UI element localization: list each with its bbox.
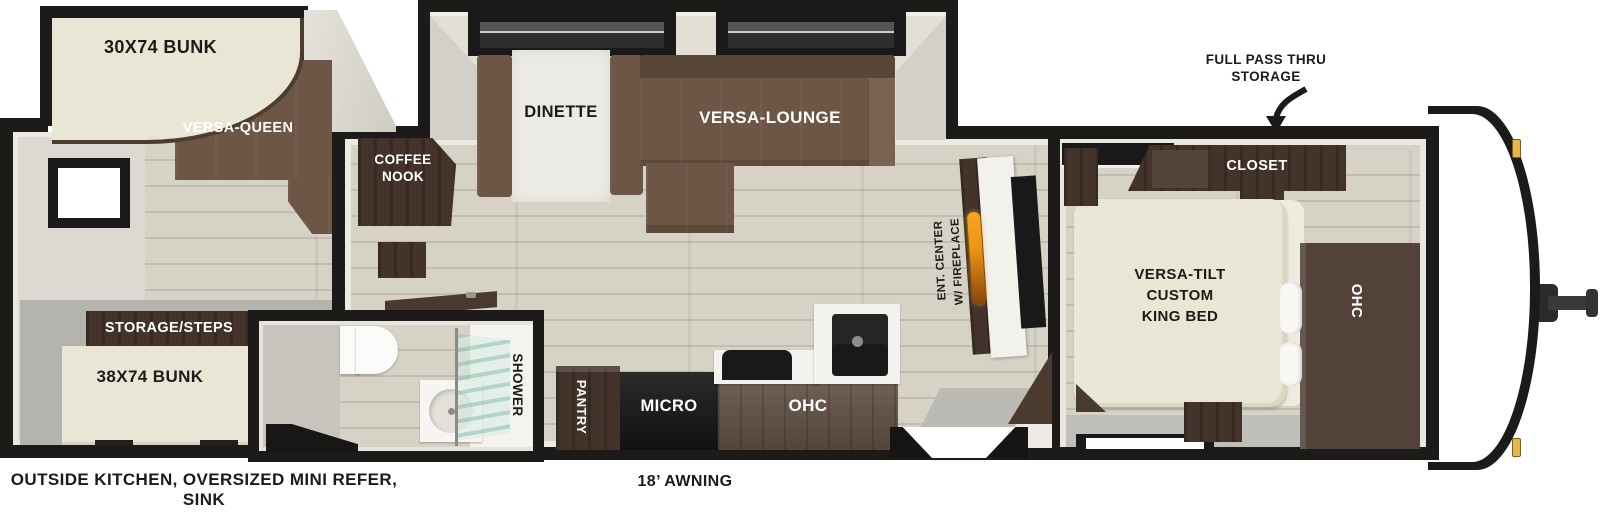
bunk-foot-mark-right [200, 440, 238, 445]
bed-label: VERSA-TILT CUSTOM KING BED [1110, 262, 1250, 328]
pass-thru-line2: STORAGE [1231, 68, 1300, 85]
bedroom-ohc-label: OHC [1348, 256, 1366, 346]
pass-thru-line1: FULL PASS THRU [1206, 51, 1327, 68]
storage-arrow-icon [1248, 86, 1320, 134]
top-slide-top-wall [418, 0, 958, 12]
counter-faucet-dot [466, 292, 476, 298]
slide-window-left-glass [480, 22, 664, 48]
bunk-foot-mark-left [95, 440, 133, 445]
top-slide-left-wall [418, 0, 430, 140]
bedroom-foot-cabinet [1064, 148, 1098, 206]
shower-glass-rod [455, 328, 458, 446]
outside-kitchen-caption: OUTSIDE KITCHEN, OVERSIZED MINI REFER, S… [8, 468, 400, 512]
cooktop [722, 350, 792, 380]
dinette-label: DINETTE [508, 100, 614, 124]
bed-label-line1: VERSA-TILT [1134, 264, 1225, 285]
dinette-bench-right [610, 55, 643, 195]
awning-caption: 18’ AWNING [595, 471, 775, 493]
rear-window-glass [58, 168, 120, 218]
bunk-slide-top-wall [40, 6, 308, 18]
slide-window-right-glass [728, 22, 894, 48]
hitch-tip [1586, 289, 1598, 317]
bedroom-nightstand [1184, 402, 1242, 442]
storage-steps-label: STORAGE/STEPS [88, 314, 250, 342]
rear-room-left-wall [0, 118, 13, 458]
outside-kitchen-line1: OUTSIDE KITCHEN, OVERSIZED MINI REFER, [11, 470, 397, 490]
bath-sink-drain [448, 408, 455, 415]
dinette-bench-left [477, 55, 512, 197]
lounge-chaise [646, 163, 734, 233]
rv-floorplan: 30X74 BUNK VERSA-QUEEN STORAGE/STEPS 38X… [0, 0, 1600, 517]
dinette-table [512, 50, 610, 202]
pass-thru-callout: FULL PASS THRU STORAGE [1180, 50, 1352, 86]
pantry-label: PANTRY [575, 365, 589, 449]
bed-label-line2: CUSTOM [1146, 285, 1213, 306]
bed-label-line3: KING BED [1142, 306, 1219, 327]
coffee-nook-lower-cabinet [378, 242, 426, 278]
main-right-wall [1426, 126, 1439, 460]
shower-label: SHOWER [510, 335, 526, 435]
kitchen-ohc-label: OHC [748, 394, 868, 418]
coffee-nook-label: COFFEE NOOK [362, 146, 444, 190]
bunk-30x74-label: 30X74 BUNK [78, 34, 243, 60]
shower-glass-panels [458, 334, 510, 440]
closet-label: CLOSET [1216, 155, 1298, 177]
closet-upper-left-segment [1152, 150, 1210, 188]
outside-kitchen-line2: SINK [183, 490, 225, 510]
bunk-38x74-label: 38X74 BUNK [70, 364, 230, 390]
bunk-slide-left-wall [40, 6, 52, 126]
kitchen-faucet [852, 336, 863, 347]
front-marker-light-top [1512, 139, 1521, 158]
versa-queen-label: VERSA-QUEEN [172, 118, 304, 138]
bed-pillow-top [1280, 282, 1302, 334]
micro-label: MICRO [624, 394, 714, 418]
bunk-38x74 [62, 346, 252, 445]
bed-pillow-bottom [1280, 342, 1302, 386]
versa-lounge-label: VERSA-LOUNGE [665, 106, 875, 130]
top-slide-right-wall [946, 0, 958, 140]
front-marker-light-bottom [1512, 438, 1521, 457]
